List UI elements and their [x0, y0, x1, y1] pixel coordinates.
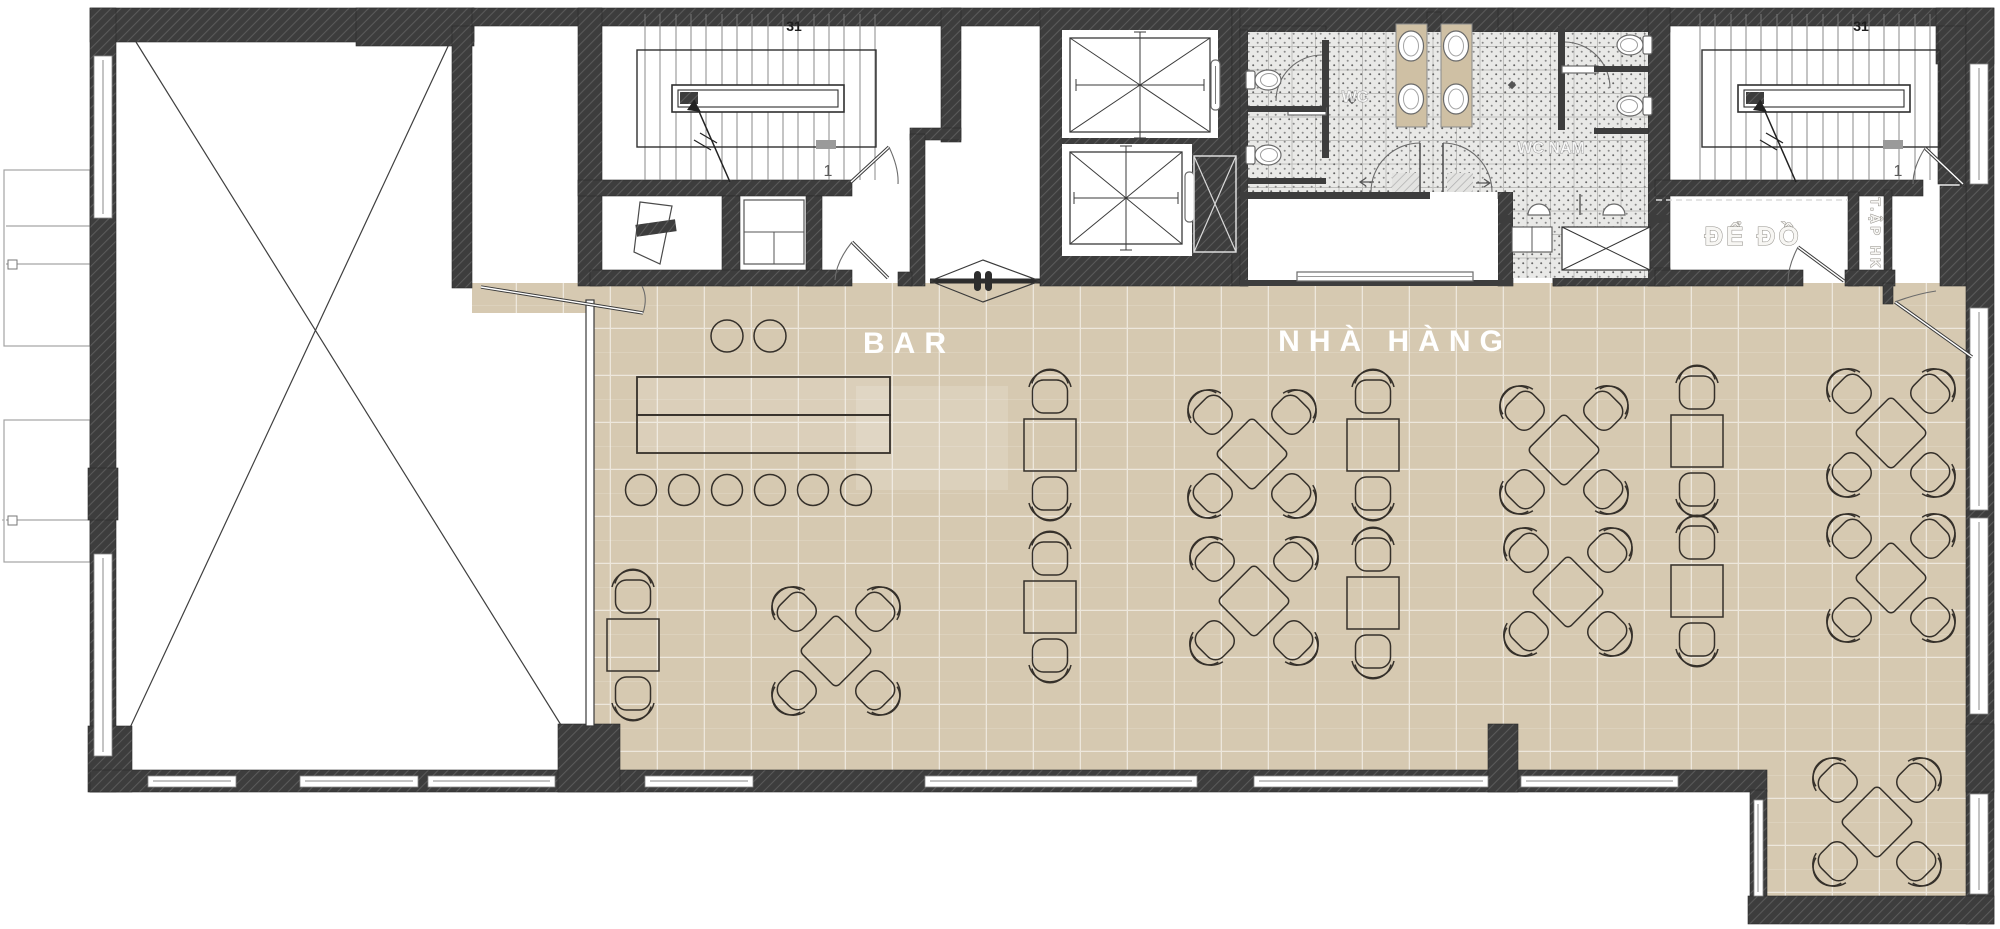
wc-label: WC: [1342, 89, 1369, 106]
vent-shaft: [1194, 156, 1236, 252]
bar-counter: [637, 377, 890, 453]
stair-left-flight-label: 31: [786, 18, 802, 34]
storage-label: ĐỂ ĐỒ: [1704, 221, 1801, 251]
floor-plan-drawing: 31 1: [0, 0, 2000, 929]
sink: [1399, 84, 1424, 114]
toilet: [1617, 35, 1652, 55]
toilet: [1617, 96, 1652, 116]
bar-area-label: BAR: [863, 327, 955, 360]
wc-men-label: WC NAM: [1517, 140, 1585, 157]
hk-shaft-label-bottom: HK: [1868, 246, 1883, 271]
toilet: [1246, 145, 1281, 165]
hk-shaft-label-top: T.ẬP: [1868, 198, 1883, 238]
sink: [1399, 31, 1424, 61]
floor-plan-page: 31 1: [0, 0, 2000, 929]
hk-shaft: T.ẬP HK: [1868, 198, 1883, 270]
sink: [1444, 84, 1469, 114]
stair-right-exit-label: 1: [1894, 163, 1903, 180]
sink: [1444, 31, 1469, 61]
toilet: [1246, 70, 1281, 90]
wc-anteroom: [1248, 199, 1498, 280]
elevator-door-icon: [1185, 172, 1194, 222]
stair-right-flight-label: 31: [1853, 18, 1869, 34]
stair-left-exit-label: 1: [824, 163, 833, 180]
restaurant-area-label: NHÀ HÀNG: [1278, 324, 1512, 358]
